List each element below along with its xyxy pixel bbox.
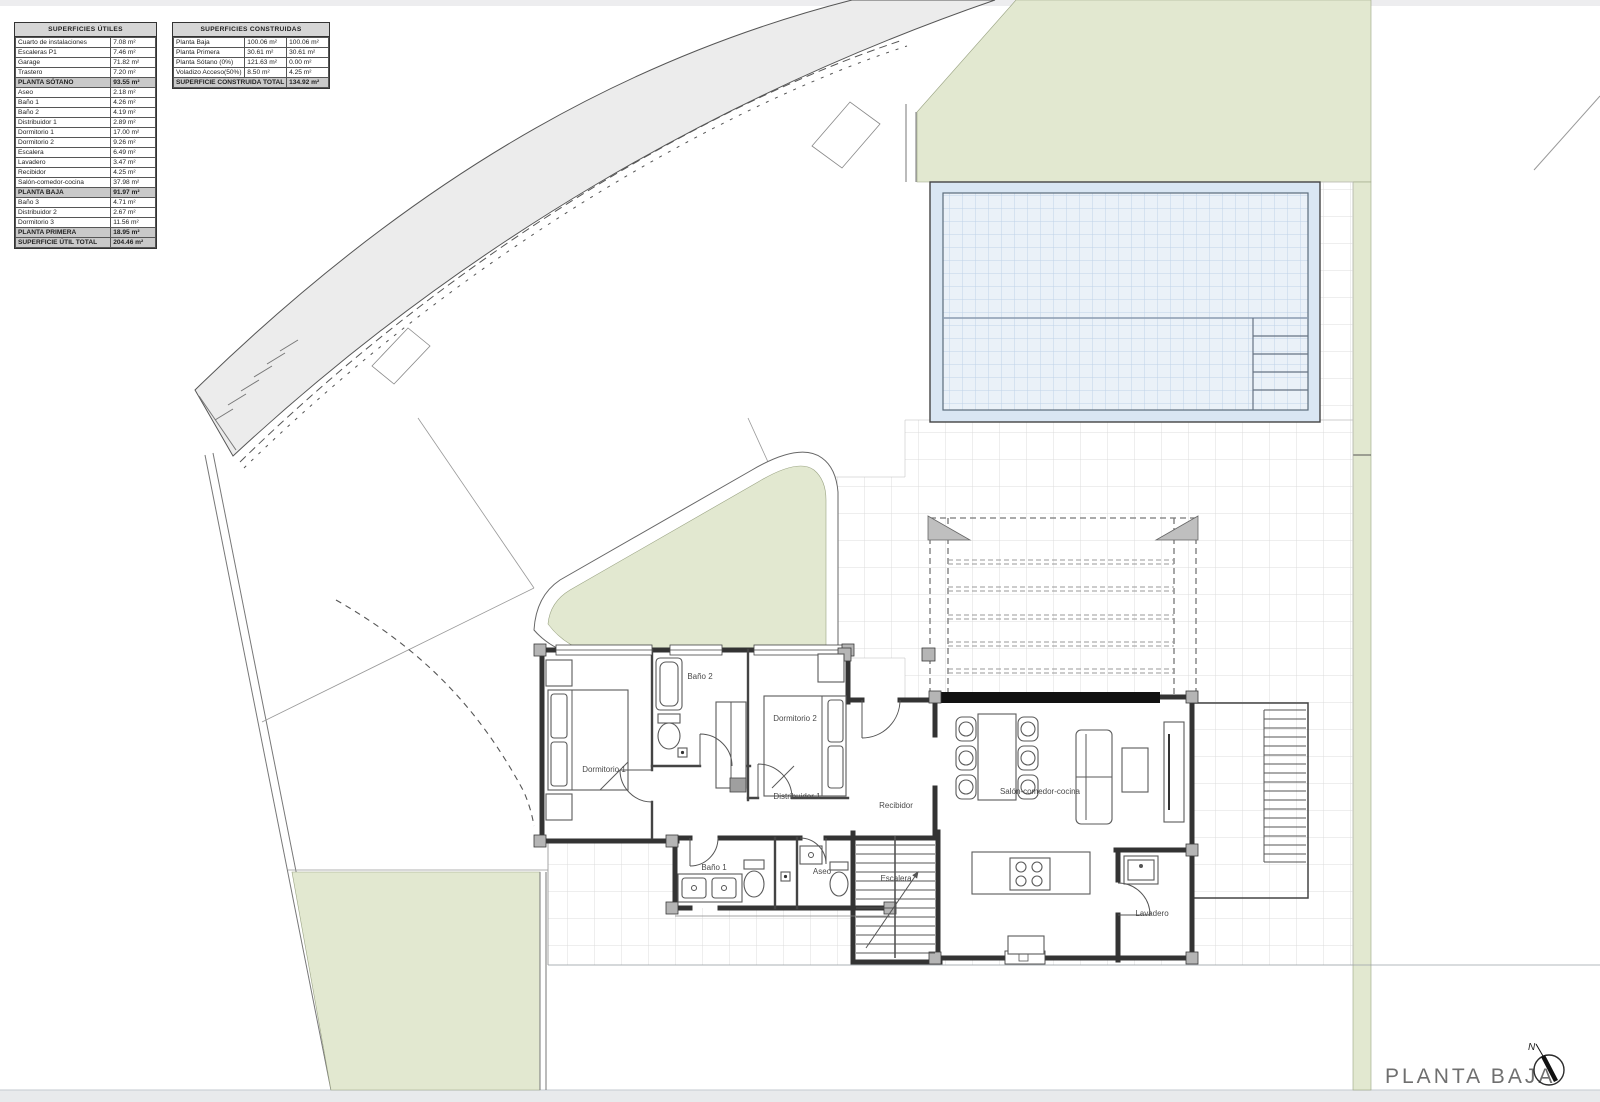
table-cell: Distribuidor 1 [16,118,111,128]
table-cell: Escaleras P1 [16,48,111,58]
table-cell: Distribuidor 2 [16,208,111,218]
table-cell: PLANTA SÓTANO [16,78,111,88]
table-row: Salón-comedor-cocina37.98 m² [16,178,156,188]
table-cell: 4.26 m² [111,98,156,108]
room-label: Dormitorio 1 [582,765,626,774]
construidas-body: Planta Baja100.06 m²100.06 m²Planta Prim… [174,38,329,78]
table-row: Planta Baja100.06 m²100.06 m² [174,38,329,48]
exterior-stairs [1193,703,1308,898]
table-cell: Lavadero [16,158,111,168]
table-cell: 30.61 m² [245,48,287,58]
table-cell: Trastero [16,68,111,78]
table-row: Dormitorio 311.56 m² [16,218,156,228]
table-row: Planta Primera30.61 m²30.61 m² [174,48,329,58]
table-row: Trastero7.20 m² [16,68,156,78]
table-row: Baño 34.71 m² [16,198,156,208]
table-cell: 2.89 m² [111,118,156,128]
total-label: SUPERFICIE CONSTRUIDA TOTAL [174,78,287,88]
north-wall [906,104,916,182]
table-title: SUPERFICIES CONSTRUIDAS [173,23,329,37]
table-cell: SUPERFICIE ÚTIL TOTAL [16,238,111,248]
table-cell: 7.08 m² [111,38,156,48]
table-cell: Baño 1 [16,98,111,108]
table-cell: Dormitorio 3 [16,218,111,228]
garden-southwest [292,872,540,1090]
table-cell: Baño 2 [16,108,111,118]
table-superficies-construidas: SUPERFICIES CONSTRUIDAS Planta Baja100.0… [172,22,330,89]
table-cell: 30.61 m² [287,48,329,58]
room-label: Baño 1 [701,863,727,872]
table-row: Escalera6.49 m² [16,148,156,158]
table-row: Garage71.82 m² [16,58,156,68]
table-row: Lavadero3.47 m² [16,158,156,168]
table-row: Baño 14.26 m² [16,98,156,108]
room-label: Salón-comedor-cocina [1000,787,1081,796]
table-cell: PLANTA PRIMERA [16,228,111,238]
table-row: Escaleras P17.46 m² [16,48,156,58]
room-label: Distribuidor 1 [773,792,821,801]
table-cell: 93.55 m² [111,78,156,88]
table-row: Dormitorio 29.26 m² [16,138,156,148]
table-superficies-utiles: SUPERFICIES ÚTILES Cuarto de instalacion… [14,22,157,249]
table-cell: 7.46 m² [111,48,156,58]
table-cell: PLANTA BAJA [16,188,111,198]
plan-drawing: Dormitorio 1 Baño 2 Dormitorio 2 Distrib… [0,0,1600,1102]
room-label: Aseo [813,867,832,876]
table-cell: Planta Baja [174,38,245,48]
table-row: Planta Sótano (0%)121.63 m²0.00 m² [174,58,329,68]
table-cell: 100.06 m² [245,38,287,48]
garden-north [917,0,1371,182]
north-label: N [1528,1042,1536,1053]
table-row: PLANTA BAJA91.97 m² [16,188,156,198]
table-row-total: SUPERFICIE CONSTRUIDA TOTAL 134.92 m² [174,78,329,88]
table-cell: 0.00 m² [287,58,329,68]
table-cell: 2.18 m² [111,88,156,98]
table-title: SUPERFICIES ÚTILES [15,23,156,37]
table-cell: 2.67 m² [111,208,156,218]
room-label: Recibidor [879,801,913,810]
table-cell: 4.25 m² [287,68,329,78]
table-row: Baño 24.19 m² [16,108,156,118]
table-cell: Cuarto de instalaciones [16,38,111,48]
table-cell: 4.19 m² [111,108,156,118]
table-cell: 4.25 m² [111,168,156,178]
room-label: Baño 2 [687,672,713,681]
table-cell: 17.00 m² [111,128,156,138]
table-row: Recibidor4.25 m² [16,168,156,178]
table-row: Aseo2.18 m² [16,88,156,98]
table-row: Dormitorio 117.00 m² [16,128,156,138]
driveway-arc [336,600,534,826]
utiles-body: Cuarto de instalaciones7.08 m²Escaleras … [16,38,156,248]
garden-east-strip [1353,182,1371,1090]
table-cell: 71.82 m² [111,58,156,68]
table-cell: Recibidor [16,168,111,178]
table-cell: 8.50 m² [245,68,287,78]
table-row: PLANTA PRIMERA18.95 m² [16,228,156,238]
table-cell: 9.26 m² [111,138,156,148]
room-label: Dormitorio 2 [773,714,817,723]
table-cell: Planta Primera [174,48,245,58]
table-cell: 18.95 m² [111,228,156,238]
plan-title: PLANTA BAJA [1385,1065,1555,1088]
page-bottom-edge [0,1090,1600,1102]
table-cell: 6.49 m² [111,148,156,158]
table-row: Cuarto de instalaciones7.08 m² [16,38,156,48]
table-row: Distribuidor 12.89 m² [16,118,156,128]
table-cell: 11.56 m² [111,218,156,228]
table-cell: Baño 3 [16,198,111,208]
table-cell: 91.97 m² [111,188,156,198]
total-value: 134.92 m² [287,78,329,88]
table-cell: Voladizo Acceso(50%) [174,68,245,78]
table-cell: Salón-comedor-cocina [16,178,111,188]
table-cell: Garage [16,58,111,68]
table-row: PLANTA SÓTANO93.55 m² [16,78,156,88]
table-row: Distribuidor 22.67 m² [16,208,156,218]
table-cell: 37.98 m² [111,178,156,188]
salon-window-band [940,692,1160,703]
room-label: Lavadero [1135,909,1169,918]
table-cell: Dormitorio 2 [16,138,111,148]
garden-central [534,452,838,660]
table-cell: 204.46 m² [111,238,156,248]
table-cell: 7.20 m² [111,68,156,78]
pool [930,182,1320,422]
table-cell: Dormitorio 1 [16,128,111,138]
room-label: Escalera [880,874,912,883]
table-row: SUPERFICIE ÚTIL TOTAL204.46 m² [16,238,156,248]
road-band [195,0,1600,468]
table-cell: 3.47 m² [111,158,156,168]
table-cell: 100.06 m² [287,38,329,48]
table-cell: Aseo [16,88,111,98]
table-cell: 121.63 m² [245,58,287,68]
table-cell: Escalera [16,148,111,158]
table-row: Voladizo Acceso(50%)8.50 m²4.25 m² [174,68,329,78]
table-cell: 4.71 m² [111,198,156,208]
table-cell: Planta Sótano (0%) [174,58,245,68]
floor-plan-sheet: Dormitorio 1 Baño 2 Dormitorio 2 Distrib… [0,0,1600,1102]
